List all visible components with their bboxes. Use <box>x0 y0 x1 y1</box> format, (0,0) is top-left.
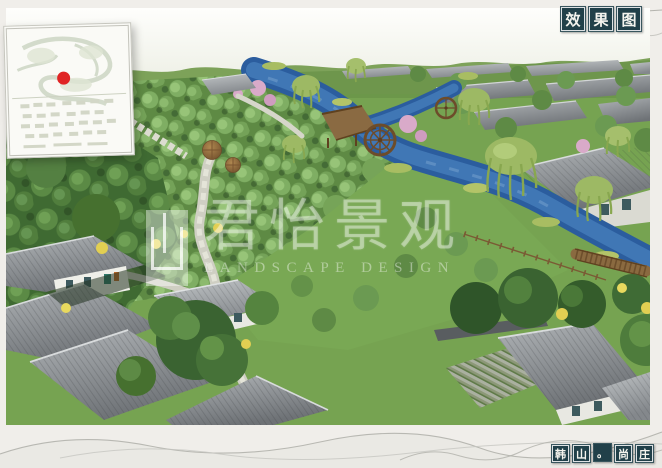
title-char: 图 <box>617 7 641 31</box>
title-char: 效 <box>561 7 585 31</box>
title-char-box: 果 <box>588 6 614 32</box>
site-plan-inset <box>3 22 135 159</box>
project-char: 尚 <box>615 445 632 462</box>
project-separator-box: 。 <box>593 443 612 462</box>
project-stamp: 韩 山 。 尚 庄 <box>551 443 654 463</box>
project-char-box: 尚 <box>614 444 633 463</box>
water-wheel-small <box>436 98 456 118</box>
project-char: 庄 <box>636 445 653 462</box>
project-char: 山 <box>573 445 590 462</box>
site-plan-drawing <box>4 23 134 157</box>
water-wheel-large <box>365 125 395 155</box>
presentation-board: 君怡景观 LANDSCAPE DESIGN <box>0 0 662 468</box>
project-char-box: 庄 <box>635 444 654 463</box>
project-char-box: 山 <box>572 444 591 463</box>
project-char: 韩 <box>552 445 569 462</box>
project-char-box: 韩 <box>551 444 570 463</box>
title-char: 果 <box>589 7 613 31</box>
title-stamp: 效 果 图 <box>560 6 642 32</box>
title-char-box: 图 <box>616 6 642 32</box>
project-separator: 。 <box>594 444 611 461</box>
title-char-box: 效 <box>560 6 586 32</box>
